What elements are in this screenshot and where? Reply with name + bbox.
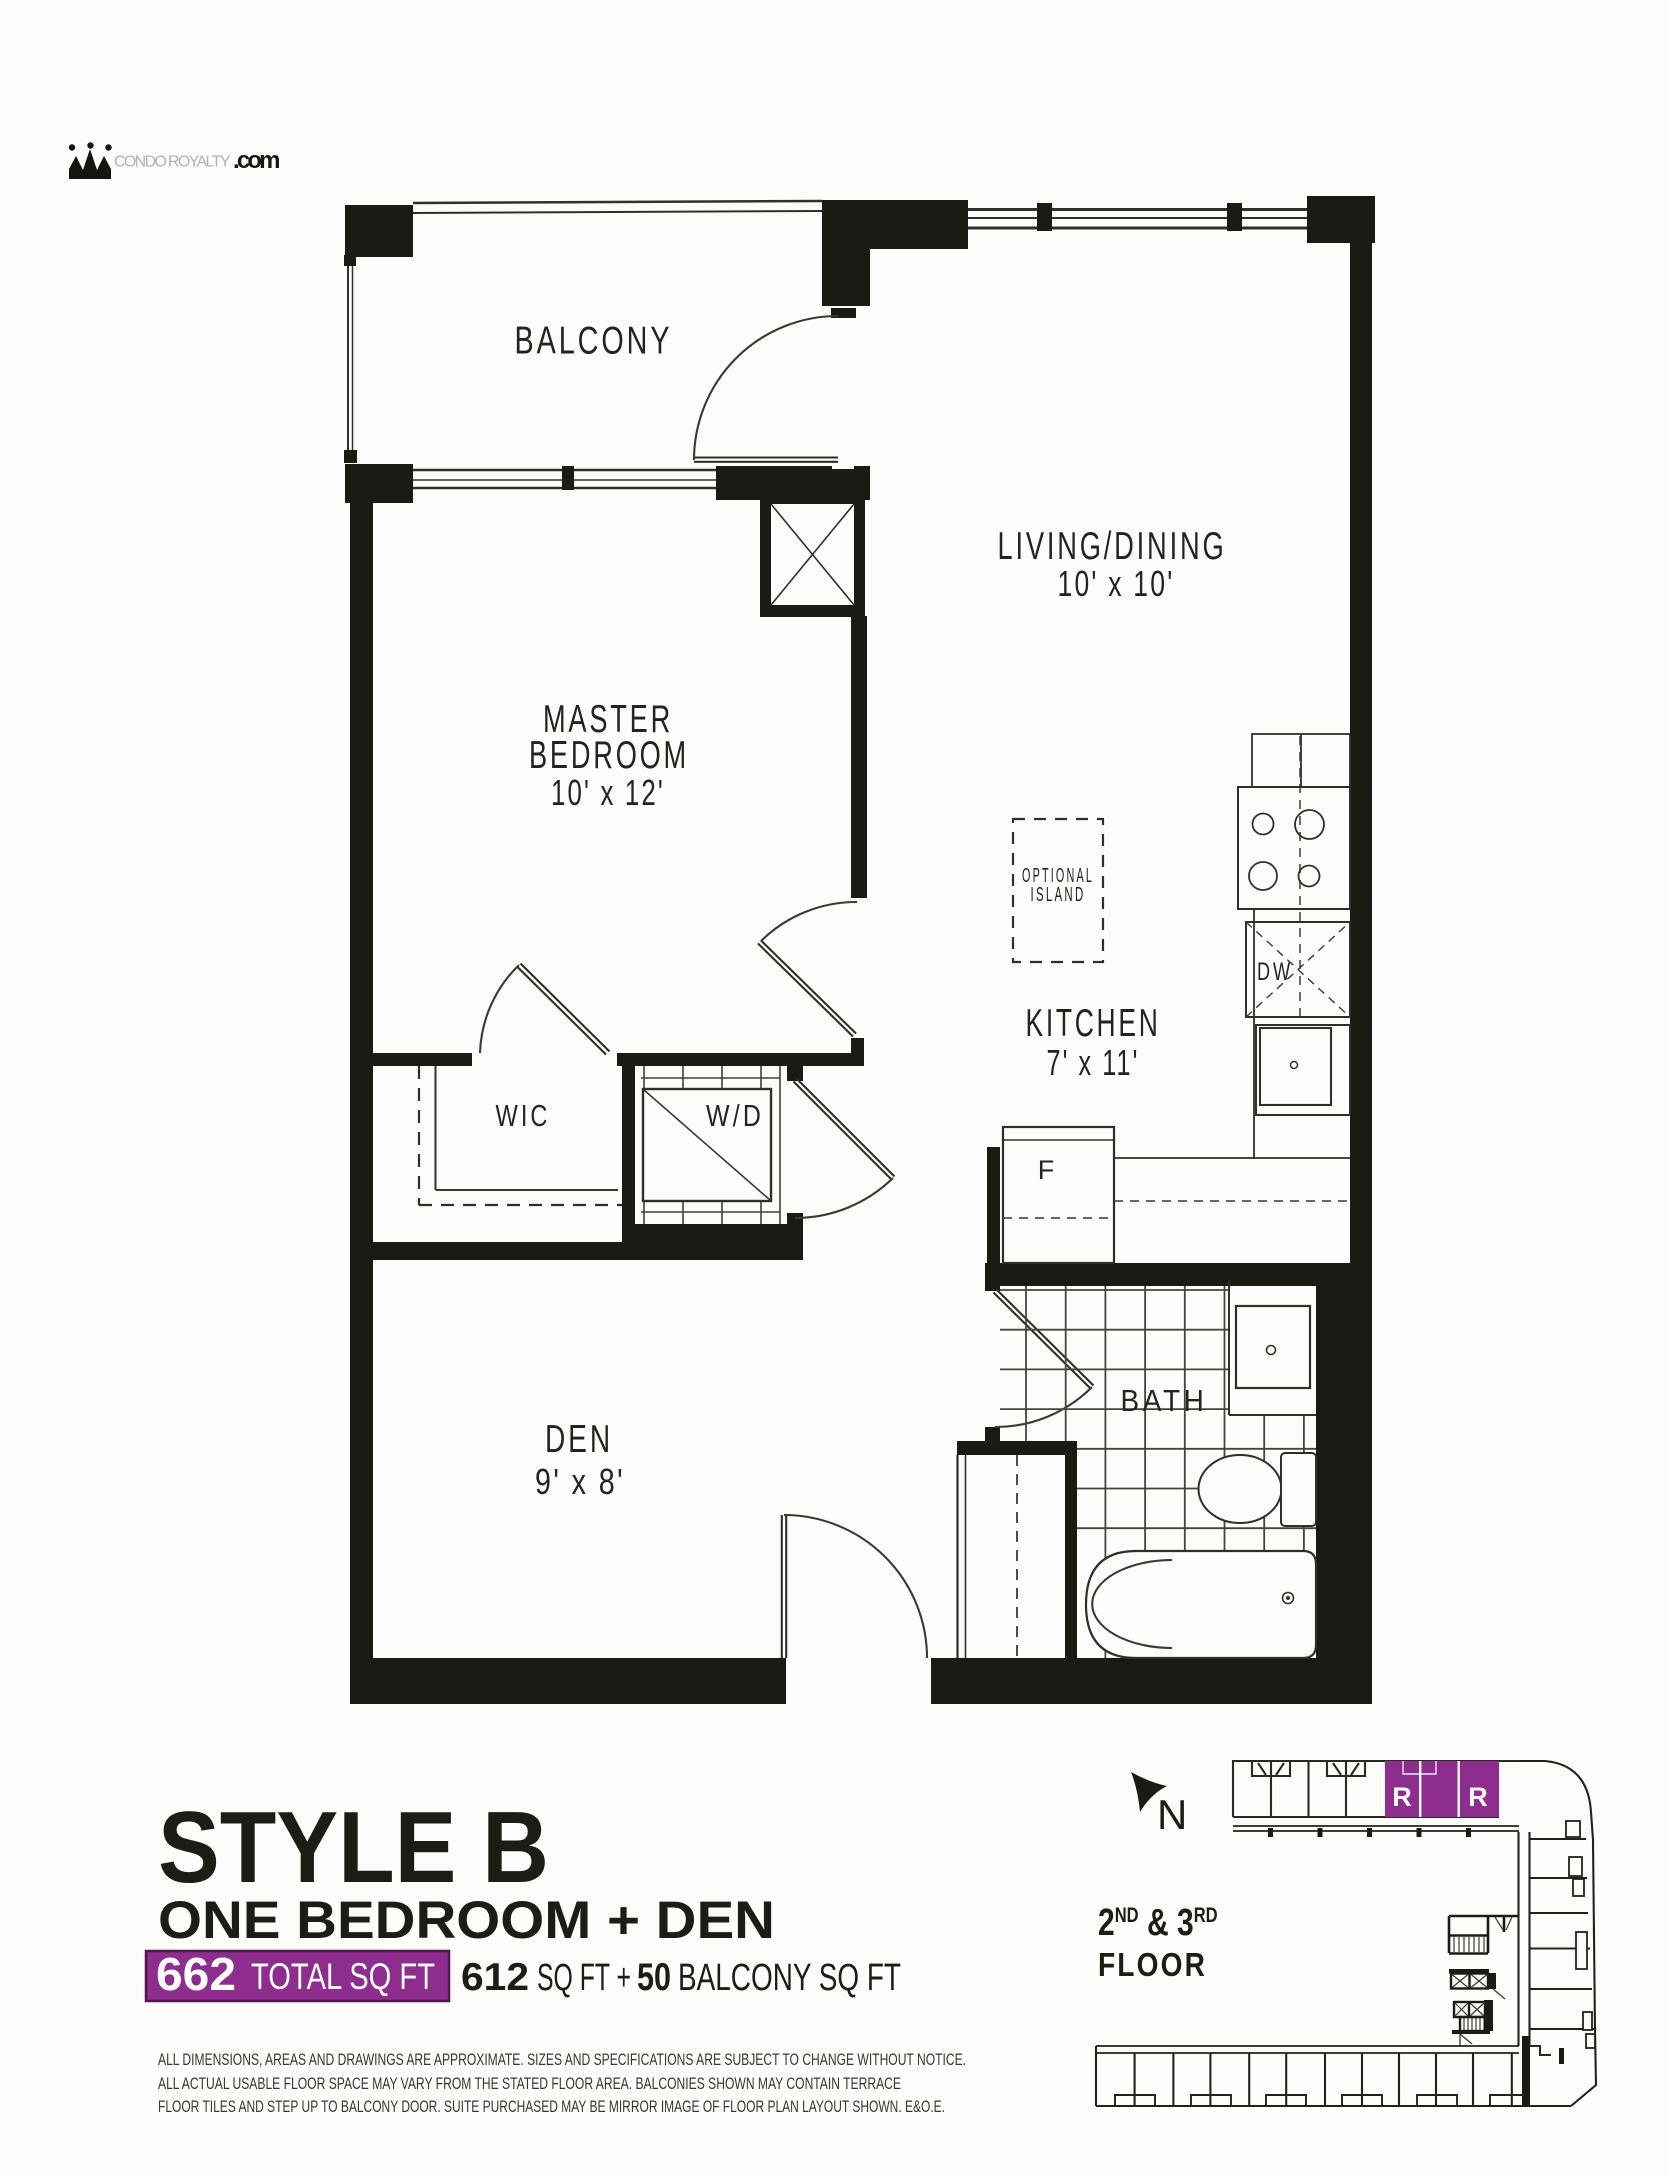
- svg-text:KITCHEN: KITCHEN: [1026, 1002, 1161, 1045]
- svg-text:STYLE B: STYLE B: [158, 1792, 549, 1904]
- svg-text:R: R: [1468, 1782, 1488, 1812]
- svg-text:N: N: [1157, 1791, 1187, 1838]
- svg-text:CONDO ROYALTY: CONDO ROYALTY: [114, 154, 232, 171]
- svg-text:.com: .com: [233, 147, 281, 174]
- svg-text:ISLAND: ISLAND: [1031, 884, 1086, 906]
- svg-text:DW: DW: [1257, 958, 1293, 986]
- svg-text:LIVING/DINING: LIVING/DINING: [998, 525, 1227, 568]
- svg-text:50: 50: [637, 1956, 671, 1999]
- svg-text:9' x 8': 9' x 8': [535, 1461, 625, 1502]
- svg-text:612: 612: [461, 1956, 529, 1999]
- svg-text:ONE BEDROOM + DEN: ONE BEDROOM + DEN: [158, 1891, 775, 1950]
- svg-text:SQ FT +: SQ FT +: [537, 1957, 631, 1999]
- svg-text:BALCONY: BALCONY: [515, 320, 673, 363]
- svg-text:FLOOR: FLOOR: [1098, 1946, 1207, 1983]
- svg-text:W/D: W/D: [706, 1098, 764, 1133]
- svg-text:662: 662: [156, 1948, 236, 2000]
- svg-text:DEN: DEN: [545, 1418, 613, 1461]
- svg-text:WIC: WIC: [496, 1098, 551, 1133]
- svg-text:F: F: [1038, 1155, 1059, 1185]
- svg-text:TOTAL SQ FT: TOTAL SQ FT: [251, 1956, 435, 1997]
- svg-text:7' x 11': 7' x 11': [1047, 1042, 1140, 1083]
- svg-text:BALCONY SQ FT: BALCONY SQ FT: [678, 1957, 901, 1999]
- svg-text:10' x 12': 10' x 12': [551, 772, 665, 813]
- svg-text:BATH: BATH: [1121, 1383, 1208, 1418]
- svg-text:R: R: [1392, 1782, 1412, 1812]
- svg-text:ALL ACTUAL USABLE FLOOR SPACE: ALL ACTUAL USABLE FLOOR SPACE MAY VARY F…: [158, 2075, 901, 2093]
- svg-text:ALL DIMENSIONS, AREAS AND DRAW: ALL DIMENSIONS, AREAS AND DRAWINGS ARE A…: [158, 2051, 966, 2069]
- svg-text:10' x 10': 10' x 10': [1058, 563, 1175, 604]
- svg-text:FLOOR TILES AND STEP UP TO BAL: FLOOR TILES AND STEP UP TO BALCONY DOOR.…: [158, 2098, 945, 2116]
- svg-text:BEDROOM: BEDROOM: [529, 734, 689, 777]
